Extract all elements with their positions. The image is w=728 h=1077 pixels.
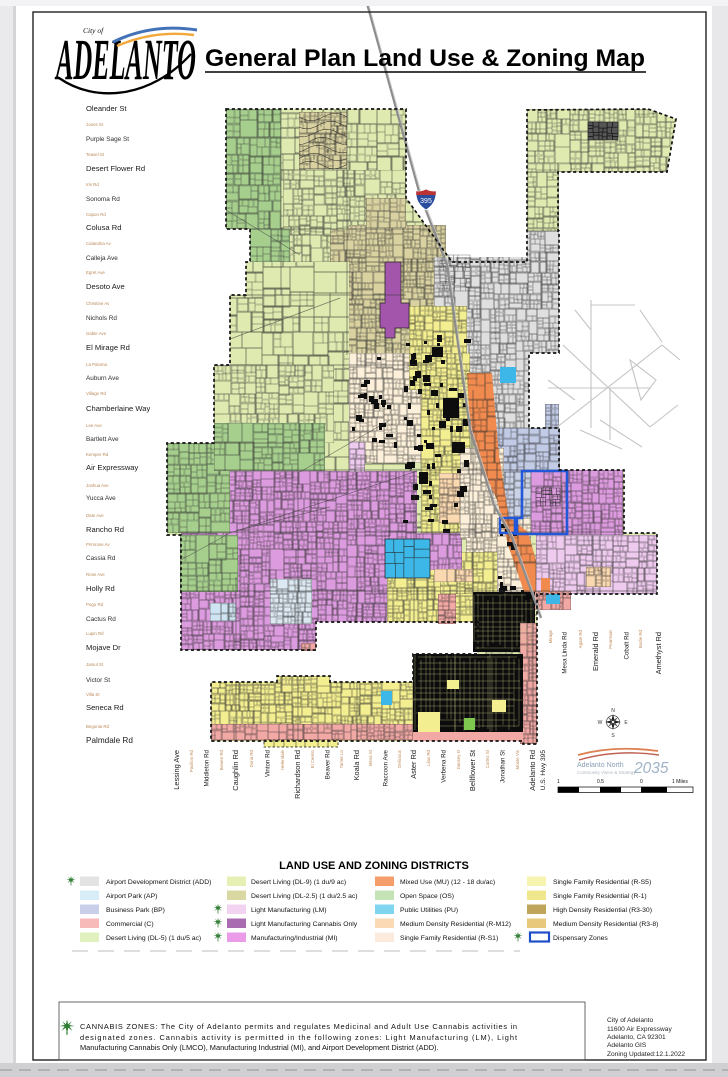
svg-text:Yucca Ave: Yucca Ave: [86, 495, 116, 502]
svg-text:Seneca Rd: Seneca Rd: [86, 703, 124, 712]
svg-text:Bellflower St: Bellflower St: [468, 750, 477, 791]
svg-text:1 Miles: 1 Miles: [672, 779, 688, 785]
svg-text:Sonoma Rd: Sonoma Rd: [86, 196, 120, 203]
svg-text:Desert Living (DL-5) (1 du/5 a: Desert Living (DL-5) (1 du/5 ac): [106, 935, 201, 942]
svg-text:Mojave Dr: Mojave Dr: [86, 643, 121, 652]
svg-text:Public Utilities (PU): Public Utilities (PU): [400, 907, 458, 914]
svg-text:Aster Rd: Aster Rd: [409, 750, 418, 779]
svg-text:E: E: [624, 720, 628, 726]
svg-text:Airport Park (AP): Airport Park (AP): [106, 893, 157, 900]
svg-text:High Density Residential (R3-3: High Density Residential (R3-30): [553, 907, 652, 914]
svg-text:Village Rd: Village Rd: [86, 391, 106, 396]
svg-text:Business Park (BP): Business Park (BP): [106, 907, 165, 914]
svg-text:Lilac Rd: Lilac Rd: [426, 749, 431, 765]
svg-text:Lupin Rd: Lupin Rd: [86, 631, 104, 636]
svg-text:Middleton Rd: Middleton Rd: [204, 749, 211, 786]
svg-text:0.5: 0.5: [597, 779, 604, 785]
svg-text:La Paloma: La Paloma: [86, 362, 108, 367]
svg-text:LAND USE AND ZONING DISTRICTS: LAND USE AND ZONING DISTRICTS: [279, 860, 469, 872]
svg-text:Gable Ave: Gable Ave: [86, 331, 107, 336]
svg-text:Palmdale Rd: Palmdale Rd: [86, 736, 133, 745]
svg-text:Calandria Av: Calandria Av: [86, 241, 112, 246]
svg-text:Single Family Residential (R-S: Single Family Residential (R-S1): [400, 935, 498, 942]
svg-text:Date Ave: Date Ave: [86, 513, 104, 518]
svg-text:Open Space (OS): Open Space (OS): [400, 893, 454, 900]
svg-text:Medium Density Residential (R3: Medium Density Residential (R3-8): [553, 921, 658, 928]
svg-text:Agate Rd: Agate Rd: [578, 629, 583, 648]
svg-text:Purple Sage St: Purple Sage St: [86, 136, 129, 143]
svg-text:Jamul St: Jamul St: [86, 662, 104, 667]
svg-text:Desert Living (DL-2.5) (1 du/2: Desert Living (DL-2.5) (1 du/2.5 ac): [251, 893, 358, 900]
svg-text:Light Manufacturing Cannabis O: Light Manufacturing Cannabis Only: [251, 921, 358, 928]
svg-text:N: N: [611, 708, 615, 714]
svg-text:Air Expressway: Air Expressway: [86, 463, 139, 472]
svg-text:Monte Vis: Monte Vis: [515, 749, 520, 769]
svg-text:Nichols Rd: Nichols Rd: [86, 315, 117, 322]
svg-text:Vinton Rd: Vinton Rd: [265, 749, 272, 777]
svg-text:2035: 2035: [633, 760, 669, 777]
svg-text:Medium Density Residential (R-: Medium Density Residential (R-M12): [400, 921, 511, 928]
svg-text:Capon Rd: Capon Rd: [86, 212, 106, 217]
svg-text:Single Family Residential (R-1: Single Family Residential (R-1): [553, 893, 647, 900]
svg-text:El Mirage Rd: El Mirage Rd: [86, 343, 130, 352]
svg-text:Adelanto, CA 92301: Adelanto, CA 92301: [607, 1034, 666, 1041]
svg-text:Bartlett Ave: Bartlett Ave: [86, 436, 119, 443]
svg-text:Richardson Rd: Richardson Rd: [293, 750, 302, 799]
svg-text:S: S: [611, 733, 615, 739]
svg-text:Desert Flower Rd: Desert Flower Rd: [86, 164, 145, 173]
svg-text:395: 395: [420, 198, 432, 205]
svg-text:Chamberlaine Way: Chamberlaine Way: [86, 404, 150, 413]
svg-text:Desoto Ave: Desoto Ave: [86, 282, 125, 291]
svg-text:Single Family Residential (R-S: Single Family Residential (R-S5): [553, 879, 651, 886]
svg-text:Rancho Rd: Rancho Rd: [86, 525, 124, 534]
svg-text:Manufacturing Cannabis Only (L: Manufacturing Cannabis Only (LMCO), Manu…: [80, 1043, 439, 1052]
svg-text:Tamer Ln: Tamer Ln: [339, 749, 344, 768]
svg-text:Rose Ave: Rose Ave: [86, 572, 105, 577]
svg-text:Lee Ave: Lee Ave: [86, 423, 102, 428]
svg-text:Joshua Ave: Joshua Ave: [86, 483, 109, 488]
svg-text:Mirage: Mirage: [548, 629, 553, 643]
svg-text:Jonathan St: Jonathan St: [500, 750, 507, 783]
svg-text:General Plan Land Use & Zoning: General Plan Land Use & Zoning Map: [205, 45, 645, 72]
svg-text:Light Manufacturing (LM): Light Manufacturing (LM): [251, 907, 327, 914]
svg-text:Cobalt Rd: Cobalt Rd: [624, 631, 631, 659]
svg-text:Auburn Ave: Auburn Ave: [86, 375, 119, 382]
svg-text:Bodie Rd: Bodie Rd: [638, 629, 643, 648]
svg-text:Jones St: Jones St: [86, 122, 104, 127]
svg-text:Lessing Ave: Lessing Ave: [172, 750, 181, 790]
svg-text:Community Vision & Strategy: Community Vision & Strategy: [577, 770, 636, 775]
svg-text:11600 Air Expressway: 11600 Air Expressway: [607, 1026, 672, 1033]
svg-text:Adelanto North: Adelanto North: [577, 762, 624, 769]
svg-text:Colusa Rd: Colusa Rd: [86, 223, 121, 232]
svg-text:U.S. Hwy 395: U.S. Hwy 395: [540, 750, 547, 791]
svg-text:Dispensary Zones: Dispensary Zones: [553, 935, 608, 942]
svg-text:Emerald Rd: Emerald Rd: [591, 632, 600, 671]
svg-text:El Cerrito: El Cerrito: [310, 749, 315, 768]
svg-text:Koala Rd: Koala Rd: [352, 750, 361, 780]
svg-text:Oleander St: Oleander St: [86, 104, 127, 113]
svg-text:Airport Development District (: Airport Development District (ADD): [106, 879, 211, 886]
svg-text:Calleja Ave: Calleja Ave: [86, 255, 118, 262]
svg-text:Mesa Linda Rd: Mesa Linda Rd: [562, 631, 569, 673]
svg-text:Pavilion Rd: Pavilion Rd: [189, 749, 194, 772]
svg-text:Doria Rd: Doria Rd: [249, 749, 254, 767]
svg-text:Primrose Av: Primrose Av: [86, 542, 110, 547]
svg-text:Raccoon Ave: Raccoon Ave: [383, 749, 390, 786]
svg-text:Bowen Rd: Bowen Rd: [219, 749, 224, 770]
svg-text:Begonia Rd: Begonia Rd: [86, 724, 110, 729]
svg-text:Egret Ave: Egret Ave: [86, 270, 106, 275]
svg-text:Cortez St: Cortez St: [485, 749, 490, 768]
svg-text:Cassia Rd: Cassia Rd: [86, 555, 116, 562]
svg-text:Amethyst Rd: Amethyst Rd: [654, 632, 663, 674]
svg-text:Pearmain: Pearmain: [608, 629, 613, 648]
svg-text:Mixed Use (MU) (12 - 18 du/ac): Mixed Use (MU) (12 - 18 du/ac): [400, 879, 495, 886]
svg-text:Dansey D: Dansey D: [456, 750, 461, 769]
svg-text:City of Adelanto: City of Adelanto: [607, 1017, 654, 1024]
svg-text:Cactus Rd: Cactus Rd: [86, 616, 116, 623]
svg-text:Christine Av: Christine Av: [86, 301, 110, 306]
svg-text:CANNABIS ZONES: The City of Ad: CANNABIS ZONES: The City of Adelanto per…: [80, 1022, 517, 1031]
svg-text:Kemper Rd: Kemper Rd: [86, 452, 109, 457]
svg-text:Victor St: Victor St: [86, 677, 110, 684]
svg-text:Holly Rd: Holly Rd: [86, 584, 115, 593]
svg-text:Beaver Rd: Beaver Rd: [325, 749, 332, 779]
svg-text:Delicious: Delicious: [397, 749, 402, 768]
svg-text:Caughlin Rd: Caughlin Rd: [231, 750, 240, 791]
svg-text:designated zones. Cannabis act: designated zones. Cannabis activity is p…: [80, 1033, 517, 1042]
svg-text:Desert Living (DL-9) (1 du/9 a: Desert Living (DL-9) (1 du/9 ac): [251, 879, 346, 886]
svg-text:Adelanto Rd: Adelanto Rd: [528, 750, 537, 791]
svg-text:Iris Rd: Iris Rd: [86, 182, 99, 187]
svg-text:Adelanto GIS: Adelanto GIS: [607, 1042, 647, 1049]
svg-text:Zoning Updated:12.1.2022: Zoning Updated:12.1.2022: [607, 1051, 685, 1058]
svg-text:W: W: [598, 720, 603, 726]
svg-text:Helendale: Helendale: [280, 749, 285, 769]
svg-text:Teasel St: Teasel St: [86, 152, 105, 157]
svg-text:0: 0: [640, 779, 643, 785]
svg-text:Manufacturing/Industrial (MI): Manufacturing/Industrial (MI): [251, 935, 338, 942]
svg-text:Mesa St: Mesa St: [368, 749, 373, 766]
svg-text:Verbena Rd: Verbena Rd: [441, 749, 448, 782]
svg-text:Villa St: Villa St: [86, 692, 100, 697]
svg-text:Commercial (C): Commercial (C): [106, 921, 154, 928]
svg-text:Pogo Rd: Pogo Rd: [86, 602, 104, 607]
svg-text:1: 1: [557, 779, 560, 785]
